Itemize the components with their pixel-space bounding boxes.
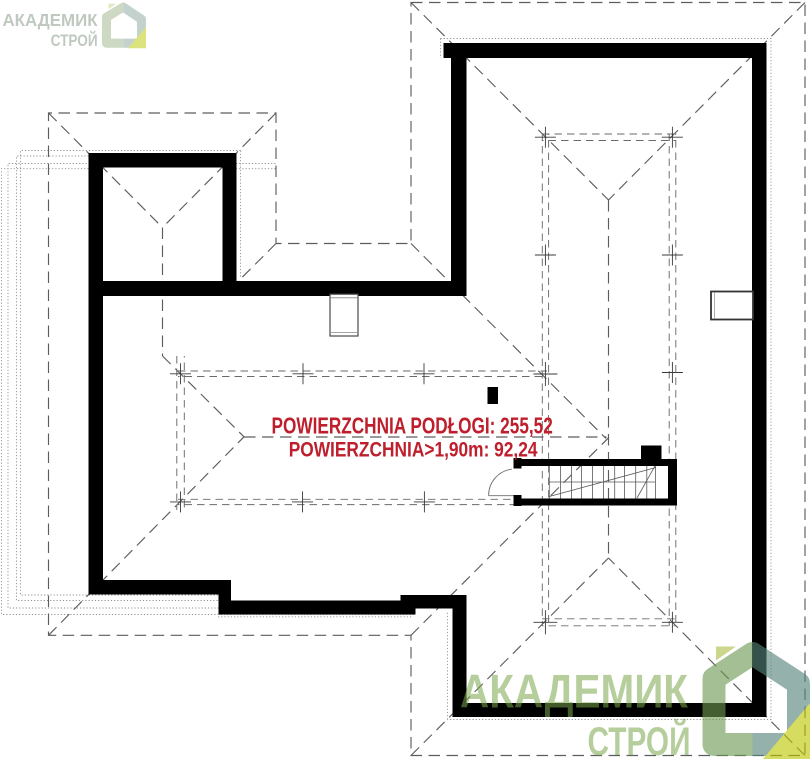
svg-text:POWIERZCHNIA PODŁOGI: 255,52: POWIERZCHNIA PODŁOGI: 255,52 <box>272 413 553 439</box>
svg-text:АКАДЕМИК: АКАДЕМИК <box>460 665 688 718</box>
svg-text:POWIERZCHNIA>1,90m: 92,24: POWIERZCHNIA>1,90m: 92,24 <box>289 438 538 462</box>
svg-text:СТРОЙ: СТРОЙ <box>51 31 98 50</box>
svg-text:СТРОЙ: СТРОЙ <box>588 718 691 759</box>
svg-text:АКАДЕМИК: АКАДЕМИК <box>3 11 99 30</box>
